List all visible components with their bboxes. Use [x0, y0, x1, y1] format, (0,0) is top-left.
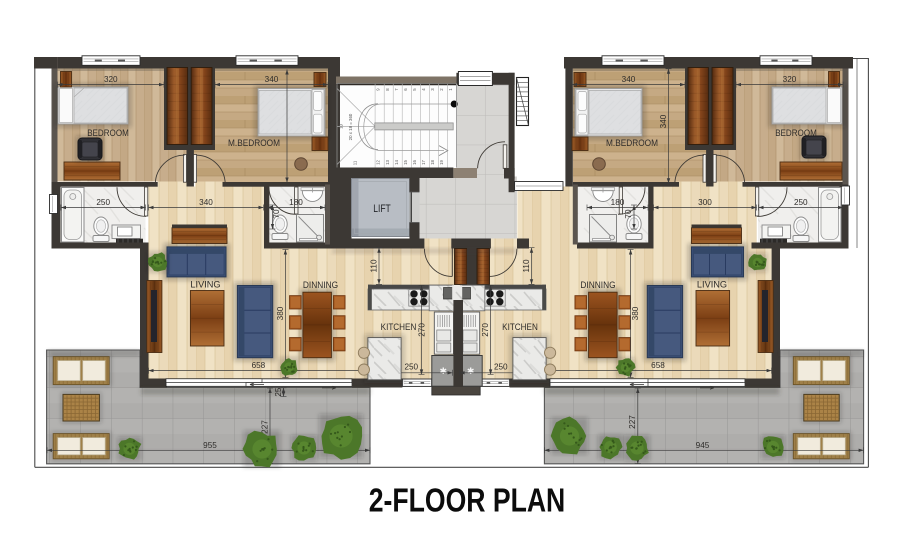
svg-text:11: 11	[353, 160, 358, 165]
svg-text:180: 180	[289, 198, 303, 207]
svg-text:13: 13	[385, 160, 390, 165]
svg-text:227: 227	[628, 415, 637, 429]
svg-text:12: 12	[376, 160, 381, 165]
svg-text:658: 658	[252, 361, 266, 370]
svg-text:340: 340	[622, 75, 636, 84]
svg-text:320: 320	[104, 75, 118, 84]
svg-text:270: 270	[481, 323, 490, 337]
svg-text:✱: ✱	[440, 366, 448, 376]
svg-text:✱: ✱	[467, 366, 475, 376]
svg-text:70: 70	[272, 209, 281, 219]
svg-text:340: 340	[199, 198, 213, 207]
svg-text:17: 17	[421, 160, 426, 165]
svg-text:2-FLOOR PLAN: 2-FLOOR PLAN	[369, 483, 566, 520]
svg-text:20 x 18 = 360: 20 x 18 = 360	[348, 113, 353, 140]
svg-text:15: 15	[403, 160, 408, 165]
svg-text:955: 955	[203, 441, 217, 450]
svg-text:14: 14	[394, 160, 399, 165]
svg-text:180: 180	[611, 198, 625, 207]
svg-text:270: 270	[418, 323, 427, 337]
svg-text:KITCHEN: KITCHEN	[381, 322, 417, 333]
svg-text:LIVING: LIVING	[697, 280, 727, 291]
svg-text:25: 25	[274, 387, 283, 397]
svg-text:BEDROOM: BEDROOM	[87, 128, 129, 139]
svg-text:380: 380	[631, 306, 640, 320]
svg-text:LIFT: LIFT	[373, 203, 391, 215]
svg-text:340: 340	[659, 114, 668, 128]
svg-text:380: 380	[276, 306, 285, 320]
svg-text:18: 18	[430, 160, 435, 165]
svg-text:16: 16	[412, 160, 417, 165]
svg-text:250: 250	[494, 362, 508, 371]
svg-text:M.BEDROOM: M.BEDROOM	[228, 138, 280, 149]
svg-text:10: 10	[339, 124, 344, 129]
svg-text:110: 110	[369, 259, 378, 272]
svg-text:320: 320	[783, 75, 797, 84]
svg-text:110: 110	[522, 259, 531, 272]
svg-text:M.BEDROOM: M.BEDROOM	[606, 138, 658, 149]
svg-text:19: 19	[439, 160, 444, 165]
svg-text:945: 945	[696, 441, 710, 450]
svg-text:340: 340	[265, 75, 279, 84]
svg-text:250: 250	[96, 198, 110, 207]
svg-text:250: 250	[794, 198, 808, 207]
svg-text:250: 250	[404, 362, 418, 371]
svg-text:DINNING: DINNING	[580, 280, 615, 291]
svg-text:KITCHEN: KITCHEN	[502, 322, 538, 333]
svg-text:300: 300	[698, 198, 712, 207]
svg-text:658: 658	[651, 361, 665, 370]
svg-text:BEDROOM: BEDROOM	[775, 128, 817, 139]
svg-text:70: 70	[624, 209, 633, 219]
svg-text:LIVING: LIVING	[190, 280, 220, 291]
svg-text:DINNING: DINNING	[303, 280, 338, 291]
